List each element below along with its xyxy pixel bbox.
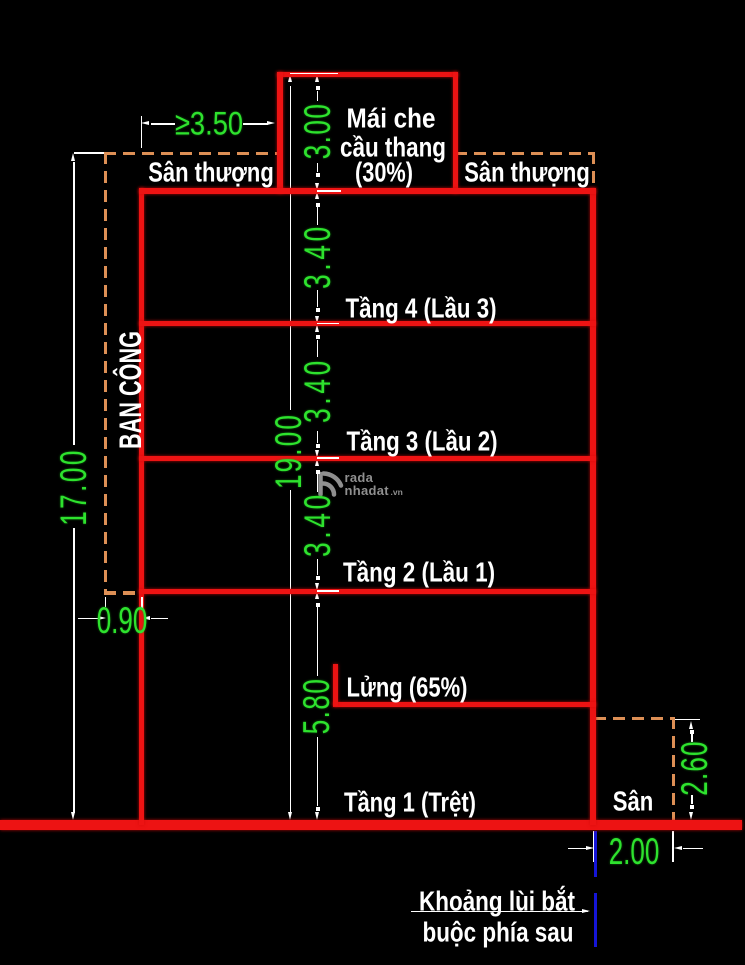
svg-text:nhadat: nhadat (345, 483, 390, 498)
svg-text:.vn: .vn (391, 487, 403, 497)
